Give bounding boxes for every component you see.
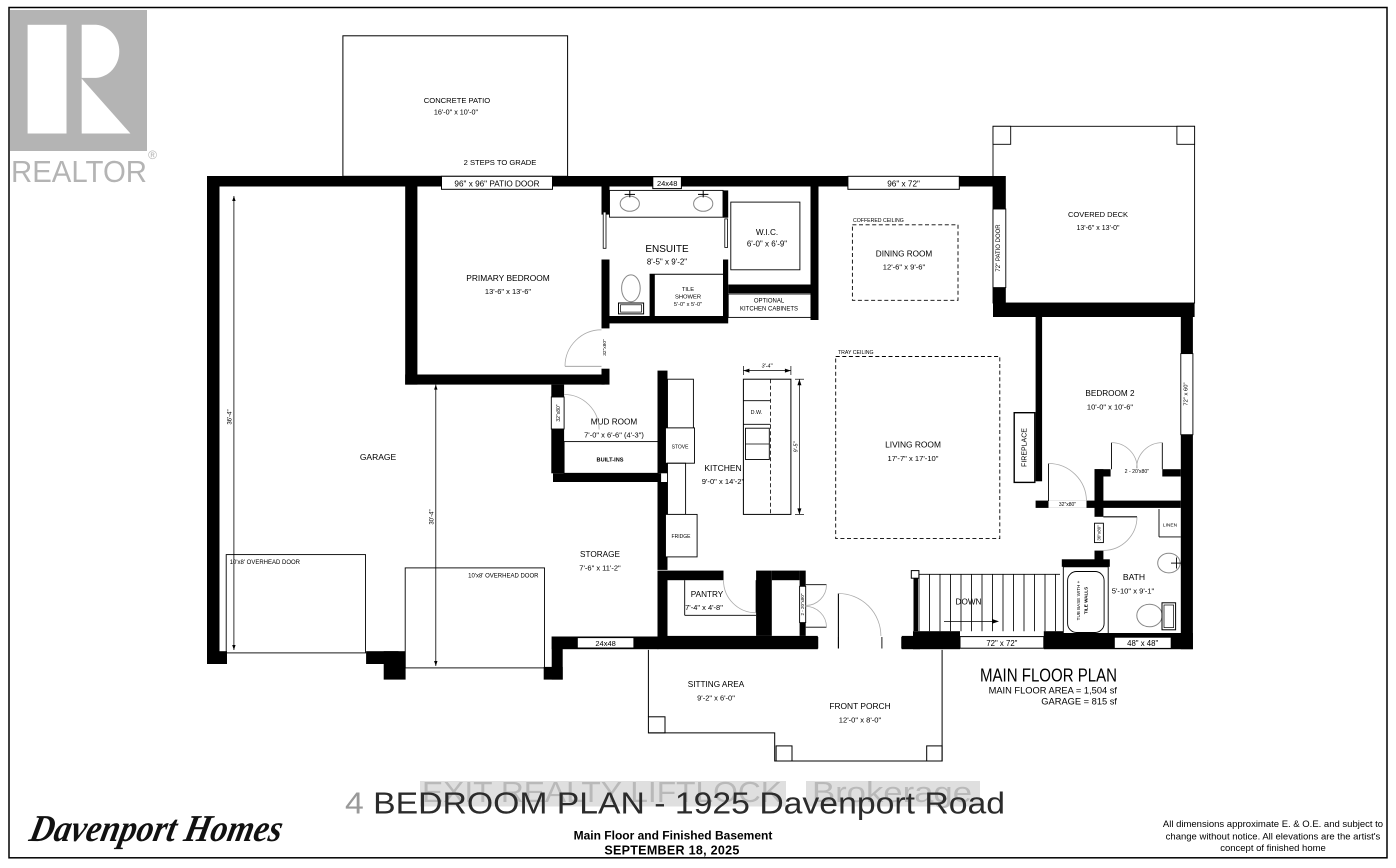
svg-text:32"x80": 32"x80" <box>1059 502 1076 508</box>
svg-text:FRONT PORCH: FRONT PORCH <box>829 701 890 711</box>
svg-text:24x48: 24x48 <box>595 639 615 648</box>
svg-text:13'-6" x 13'-0": 13'-6" x 13'-0" <box>1076 225 1120 232</box>
svg-text:All dimensions approximate E.: All dimensions approximate E. & O.E. and… <box>1163 819 1383 830</box>
svg-text:BEDROOM 2: BEDROOM 2 <box>1085 389 1135 398</box>
svg-text:LINEN: LINEN <box>1163 523 1178 529</box>
svg-text:®: ® <box>148 148 157 162</box>
svg-text:Davenport Homes: Davenport Homes <box>25 808 287 850</box>
svg-text:32"x80": 32"x80" <box>602 339 608 356</box>
svg-text:PANTRY: PANTRY <box>691 590 724 599</box>
svg-text:COFFERED CEILING: COFFERED CEILING <box>853 218 904 224</box>
svg-text:KITCHEN CABINETS: KITCHEN CABINETS <box>740 307 798 313</box>
svg-text:7'-4" x 4'-8": 7'-4" x 4'-8" <box>685 603 723 612</box>
svg-text:W.I.C.: W.I.C. <box>756 228 778 237</box>
svg-text:Main Floor and Finished Baseme: Main Floor and Finished Basement <box>574 829 773 843</box>
svg-text:12'-6" x 9'-6": 12'-6" x 9'-6" <box>883 263 926 272</box>
svg-text:10'x8' OVERHEAD DOOR: 10'x8' OVERHEAD DOOR <box>468 573 539 579</box>
svg-text:MAIN FLOOR AREA = 1,504 sf: MAIN FLOOR AREA = 1,504 sf <box>989 686 1118 696</box>
svg-text:OPTIONAL: OPTIONAL <box>754 299 785 305</box>
svg-text:2 - 20'x80": 2 - 20'x80" <box>1125 469 1150 475</box>
svg-text:96" x 96" PATIO DOOR: 96" x 96" PATIO DOOR <box>454 179 539 188</box>
svg-text:72" PATIO DOOR: 72" PATIO DOOR <box>996 224 1002 272</box>
svg-text:72" x 60": 72" x 60" <box>1184 382 1190 405</box>
svg-text:7'-6" x 11'-2": 7'-6" x 11'-2" <box>579 564 621 573</box>
svg-text:TILE: TILE <box>682 287 694 293</box>
svg-text:STORAGE: STORAGE <box>580 550 620 559</box>
svg-text:9'-0" x 14'-2": 9'-0" x 14'-2" <box>702 477 745 486</box>
svg-text:COVERED DECK: COVERED DECK <box>1068 210 1128 219</box>
svg-text:4 BEDROOM PLAN - 1925 Davenpor: 4 BEDROOM PLAN - 1925 Davenport Road <box>345 786 1005 821</box>
svg-text:13'-6" x 13'-6": 13'-6" x 13'-6" <box>485 287 531 296</box>
svg-text:16'-0" x 10'-0": 16'-0" x 10'-0" <box>434 108 479 117</box>
svg-text:24x48: 24x48 <box>657 179 677 188</box>
svg-text:2 - 20"x80": 2 - 20"x80" <box>800 593 805 615</box>
svg-text:STOVE: STOVE <box>672 445 690 451</box>
svg-text:32"x80": 32"x80" <box>556 404 562 421</box>
svg-text:DINING ROOM: DINING ROOM <box>876 250 933 259</box>
svg-text:DOWN: DOWN <box>956 598 982 607</box>
svg-text:96" x 72": 96" x 72" <box>887 179 920 188</box>
svg-text:2 STEPS TO GRADE: 2 STEPS TO GRADE <box>464 158 537 167</box>
svg-text:SHOWER: SHOWER <box>675 295 701 301</box>
svg-text:72" x 72": 72" x 72" <box>986 639 1017 648</box>
svg-text:9'-5": 9'-5" <box>793 441 799 453</box>
svg-text:TUB BASE WITH +: TUB BASE WITH + <box>1076 580 1081 620</box>
svg-text:3'-4": 3'-4" <box>762 364 774 370</box>
svg-text:8'-5" x 9'-2": 8'-5" x 9'-2" <box>647 258 687 267</box>
svg-text:MAIN FLOOR PLAN: MAIN FLOOR PLAN <box>980 666 1117 686</box>
svg-text:9'-2" x 6'-0": 9'-2" x 6'-0" <box>697 694 735 703</box>
svg-text:KITCHEN: KITCHEN <box>704 463 741 473</box>
svg-text:LIVING ROOM: LIVING ROOM <box>885 440 941 450</box>
svg-text:30'-4": 30'-4" <box>430 509 436 524</box>
svg-text:TRAY CEILING: TRAY CEILING <box>838 350 874 356</box>
svg-text:PRIMARY BEDROOM: PRIMARY BEDROOM <box>466 273 549 283</box>
svg-text:change without notice. All el: change without notice. All elevations ar… <box>1166 832 1381 843</box>
svg-text:FIREPLACE: FIREPLACE <box>1022 428 1029 467</box>
svg-text:12'-0" x 8'-0": 12'-0" x 8'-0" <box>839 716 882 725</box>
svg-text:10'-0" x 10'-6": 10'-0" x 10'-6" <box>1087 403 1133 412</box>
svg-text:concept of finished home: concept of finished home <box>1220 843 1326 854</box>
svg-text:17'-7" x 17'-10": 17'-7" x 17'-10" <box>888 454 939 463</box>
svg-text:ENSUITE: ENSUITE <box>645 244 689 255</box>
svg-text:30"x80": 30"x80" <box>1097 525 1102 541</box>
svg-text:TILE WALLS: TILE WALLS <box>1084 587 1089 614</box>
svg-text:5'-0" x 5'-0": 5'-0" x 5'-0" <box>674 302 702 308</box>
svg-text:7'-0" x 6'-6" (4'-3"): 7'-0" x 6'-6" (4'-3") <box>584 431 644 440</box>
svg-text:6'-0" x 6'-9": 6'-0" x 6'-9" <box>747 240 787 249</box>
svg-text:FRIDGE: FRIDGE <box>672 534 692 540</box>
svg-text:SEPTEMBER 18, 2025: SEPTEMBER 18, 2025 <box>604 844 739 858</box>
svg-text:5'-10" x 9'-1": 5'-10" x 9'-1" <box>1112 587 1155 596</box>
svg-text:SITTING AREA: SITTING AREA <box>688 680 745 689</box>
svg-text:GARAGE: GARAGE <box>360 452 397 462</box>
svg-text:10'x8' OVERHEAD DOOR: 10'x8' OVERHEAD DOOR <box>230 560 301 566</box>
svg-text:GARAGE = 815 sf: GARAGE = 815 sf <box>1041 697 1117 707</box>
svg-text:BUILT-INS: BUILT-INS <box>597 458 624 464</box>
svg-text:BATH: BATH <box>1123 572 1145 582</box>
svg-text:CONCRETE PATIO: CONCRETE PATIO <box>424 96 490 105</box>
svg-text:48" x 48": 48" x 48" <box>1127 639 1158 648</box>
svg-text:REALTOR: REALTOR <box>11 155 147 189</box>
svg-text:D.W.: D.W. <box>751 410 763 416</box>
svg-text:36'-4": 36'-4" <box>228 409 234 424</box>
